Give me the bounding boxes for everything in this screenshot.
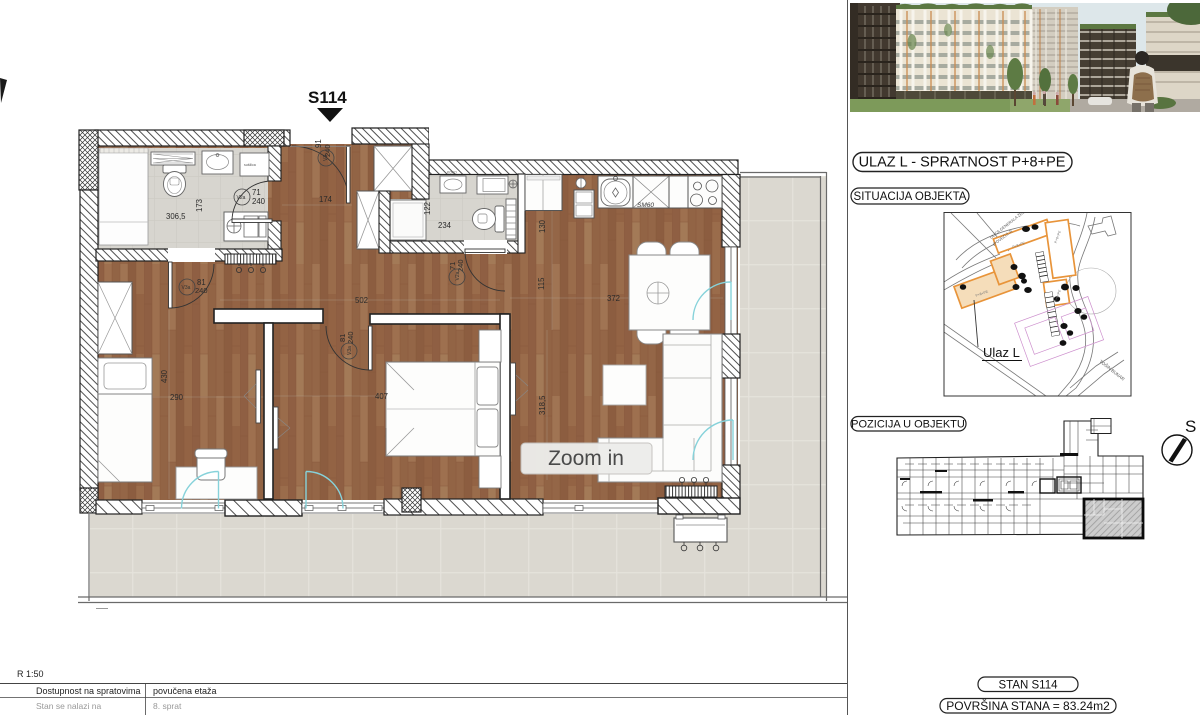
svg-text:V3a: V3a — [347, 346, 353, 355]
svg-text:sušilica: sušilica — [244, 163, 256, 167]
svg-text:502: 502 — [355, 296, 368, 305]
svg-text:122: 122 — [423, 202, 432, 215]
svg-text:Ulaz L: Ulaz L — [983, 345, 1020, 360]
svg-text:240: 240 — [346, 331, 355, 344]
svg-text:S: S — [1185, 417, 1196, 436]
svg-text:Dostupnost na spratovima: Dostupnost na spratovima — [36, 686, 141, 696]
svg-text:V3a: V3a — [182, 285, 191, 291]
svg-text:S114: S114 — [308, 88, 347, 107]
svg-text:240: 240 — [252, 197, 266, 206]
svg-text:POZICIJA U OBJEKTU: POZICIJA U OBJEKTU — [851, 419, 965, 431]
svg-text:173: 173 — [195, 199, 204, 212]
svg-text:POVRŠINA STANA = 83.24m2: POVRŠINA STANA = 83.24m2 — [946, 698, 1110, 713]
svg-text:R 1:50: R 1:50 — [17, 669, 44, 679]
svg-text:430: 430 — [160, 369, 169, 383]
svg-text:372: 372 — [607, 294, 620, 303]
svg-text:povučena etaža: povučena etaža — [153, 686, 217, 696]
svg-text:306,5: 306,5 — [166, 212, 186, 221]
svg-text:318,5: 318,5 — [538, 395, 547, 415]
svg-text:SM60: SM60 — [637, 202, 654, 209]
svg-text:V2a: V2a — [237, 195, 246, 201]
svg-text:130: 130 — [538, 219, 547, 233]
svg-text:Zoom in: Zoom in — [548, 447, 624, 470]
svg-text:8. sprat: 8. sprat — [153, 701, 182, 711]
svg-text:SITUACIJA OBJEKTA: SITUACIJA OBJEKTA — [854, 191, 967, 203]
svg-text:240: 240 — [195, 286, 208, 295]
svg-text:STAN S114: STAN S114 — [998, 680, 1058, 692]
svg-text:Stan se nalazi na: Stan se nalazi na — [36, 701, 101, 711]
svg-text:174: 174 — [319, 195, 333, 204]
svg-text:234: 234 — [438, 221, 452, 230]
svg-text:V2a: V2a — [455, 271, 461, 280]
svg-text:407: 407 — [375, 392, 388, 401]
svg-text:ULAZ L - SPRATNOST P+8+PE: ULAZ L - SPRATNOST P+8+PE — [859, 155, 1066, 171]
svg-text:290: 290 — [170, 393, 184, 402]
svg-text:KOKO: KOKO — [447, 171, 457, 175]
svg-text:115: 115 — [537, 277, 546, 290]
svg-text:91: 91 — [314, 139, 323, 148]
svg-text:V3: V3 — [323, 155, 329, 161]
svg-text:71: 71 — [252, 188, 261, 197]
